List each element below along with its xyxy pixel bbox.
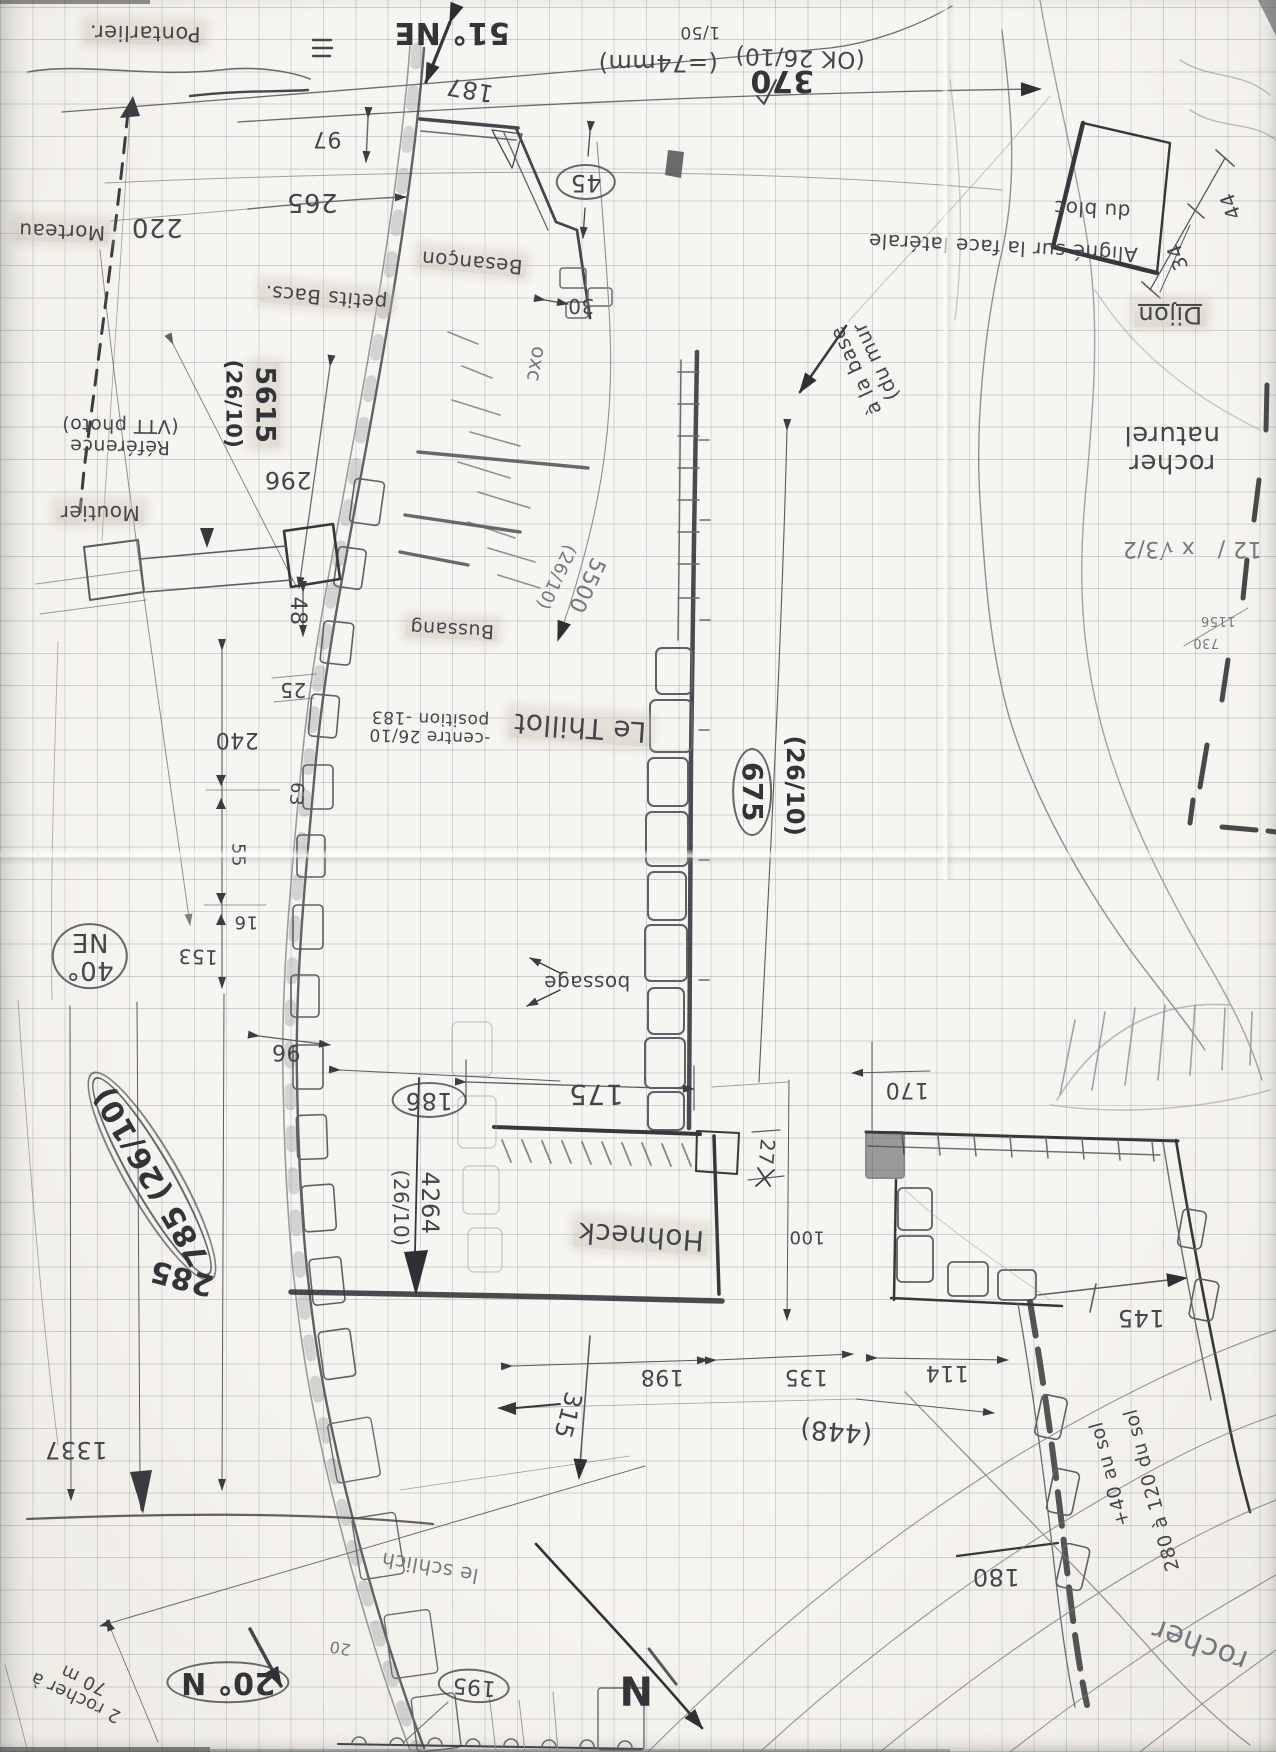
wall-complex-southeast	[866, 1132, 1250, 1707]
label-ref-675-date: (26/10)	[781, 736, 807, 837]
label-dim-114: 114	[925, 1360, 969, 1384]
label-ref-675: 675	[732, 748, 772, 836]
label-dijon: Dijon	[1134, 301, 1206, 327]
sighting-lines-top	[28, 6, 1040, 588]
label-dim-16: 16	[234, 912, 258, 931]
label-ref-4264-date: (26/10)	[389, 1170, 411, 1247]
label-dim-55: 55	[228, 843, 247, 867]
label-dim-1337: 1337	[44, 1436, 107, 1462]
label-dim-48: 48	[285, 597, 309, 626]
label-dim-27: 27	[754, 1138, 778, 1166]
label-morteau: Morteau	[15, 219, 110, 244]
label-dim-170: 170	[885, 1077, 929, 1101]
label-dim-145: 145	[1117, 1304, 1164, 1330]
label-ref-448: (448)	[799, 1414, 874, 1448]
label-rocher-naturel: rocher naturel	[1124, 421, 1220, 477]
label-dim-25: 25	[280, 678, 306, 700]
enclosure-hohneck	[291, 1022, 739, 1301]
label-dim-100: 100	[789, 1227, 825, 1246]
label-bearing-51-ne: 51° NE	[394, 16, 510, 48]
label-calc-1156: 1156	[1200, 613, 1235, 627]
label-dim-180: 180	[972, 1563, 1019, 1589]
label-dim-135: 135	[784, 1364, 828, 1388]
left-dimension-chains	[5, 250, 280, 1752]
label-dim-175: 175	[569, 1079, 624, 1109]
label-dim-265: 265	[286, 188, 337, 216]
rock-contours	[648, 1330, 1276, 1752]
label-bussang: Bussang	[405, 616, 498, 641]
label-bossage: bossage	[544, 971, 631, 993]
label-dim-198: 198	[640, 1364, 684, 1388]
label-dim-45: 45	[556, 164, 616, 200]
survey-sketch-page: Pontarlier.51° NE18797265220Morteaupetit…	[0, 0, 1276, 1752]
label-dim-370: 370	[750, 64, 814, 96]
label-bearing-40-ne: 40° NE	[52, 923, 128, 989]
label-ref-4264: 4264	[416, 1171, 442, 1234]
label-dim-97: 97	[313, 126, 342, 150]
label-dim-220: 220	[131, 213, 182, 241]
rock-hatch-fan	[1050, 1004, 1270, 1110]
label-dim-96: 96	[272, 1039, 301, 1063]
label-du-bloc: du bloc	[1053, 196, 1131, 222]
label-moutier: Moutier	[56, 501, 144, 523]
label-scale-note: (=74mm)	[598, 49, 718, 75]
label-centre-note: -centre 26/10 position -183	[369, 707, 492, 748]
label-calc-730: 730	[1193, 635, 1219, 649]
label-oxc: oxc	[522, 345, 549, 384]
label-dim-296: 296	[264, 466, 311, 492]
label-north-letter: N	[619, 1667, 653, 1710]
label-calc-sqrt: 12 / x √3/2	[1122, 536, 1261, 560]
label-dim-240: 240	[215, 727, 259, 751]
label-reference-photo: Référence (VTT photo)	[61, 414, 179, 457]
label-dim-63: 63	[285, 781, 306, 807]
label-dim-30: 30	[568, 294, 594, 316]
label-ref-5615-date: (26/10)	[222, 360, 245, 449]
label-dim-153: 153	[178, 945, 218, 968]
label-dim-186: 186	[391, 1082, 466, 1118]
label-bearing-20-n: 20° N	[167, 1661, 290, 1703]
label-scale-fraction: 1/50	[680, 23, 720, 41]
label-ref-5615: 5615	[250, 362, 279, 447]
label-dim-20-small: 20	[328, 1638, 352, 1659]
label-pontarlier: Pontarlier.	[85, 21, 205, 46]
